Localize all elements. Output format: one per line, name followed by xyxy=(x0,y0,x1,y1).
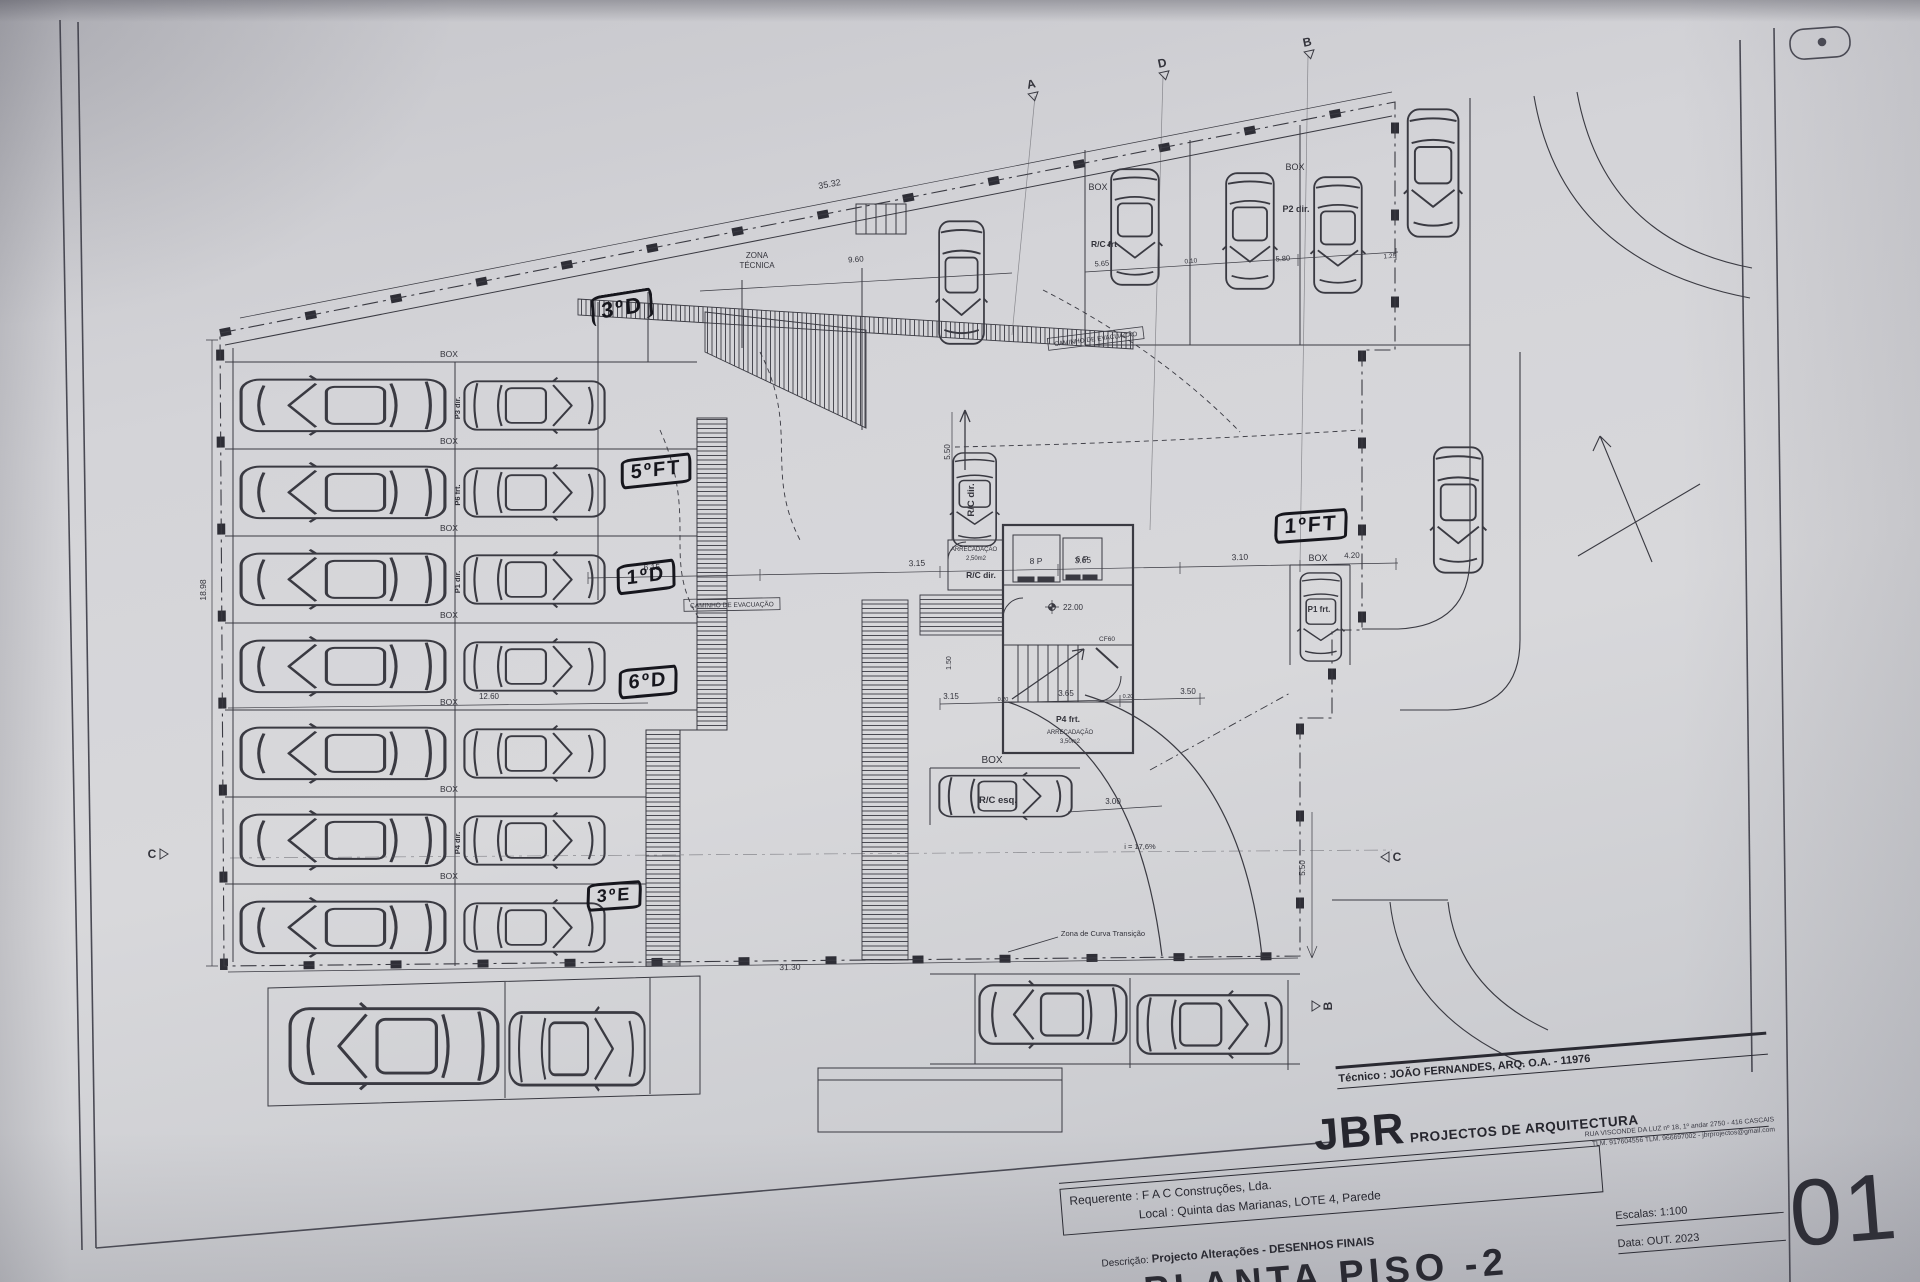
car-icon xyxy=(1297,573,1344,661)
plan-label-box-14: BOX xyxy=(440,349,458,359)
date-row: Data: OUT. 2023 xyxy=(1617,1225,1786,1254)
plan-label-5-50-39: 5.50 xyxy=(943,444,952,460)
car-icon xyxy=(241,463,445,522)
section-marker-d-1: D xyxy=(1156,55,1171,81)
section-marker-a-0: A xyxy=(1025,76,1040,102)
car-icon xyxy=(464,639,604,695)
plan-label-box-17: BOX xyxy=(440,610,458,620)
car-icon xyxy=(241,376,445,435)
plan-label-2-50m2-50: 2,50m2 xyxy=(966,556,987,562)
car-icon xyxy=(241,898,445,957)
plan-label-box-53: BOX xyxy=(1308,553,1327,563)
plan-label-8-p-42: 8 P xyxy=(1030,556,1043,566)
plan-label-6-p-43: 6 P xyxy=(1076,554,1089,564)
description-label: Descrição: xyxy=(1101,1255,1149,1270)
section-markers: ADBCCB xyxy=(148,34,1402,1011)
plan-label-5-50-40: 5.50 xyxy=(1298,860,1307,876)
right-middle-parking xyxy=(930,453,1350,825)
plan-label-cf60-45: CF60 xyxy=(1099,636,1115,643)
handwritten-1-ft: 1ºFT xyxy=(1274,508,1348,544)
plan-label-box-19: BOX xyxy=(440,784,458,794)
section-marker-triangle xyxy=(1312,1001,1320,1011)
plan-label-box-20: BOX xyxy=(440,871,458,881)
plan-label-i-17-6-57: i = 17,6% xyxy=(1124,842,1156,851)
plan-label-31-30-26: 31.30 xyxy=(779,962,801,972)
plan-label-0-20-36: 0.20 xyxy=(1123,694,1134,700)
plan-label-box-16: BOX xyxy=(440,523,458,533)
left-parking-block xyxy=(225,362,727,966)
car-icon xyxy=(1222,173,1277,289)
plan-label-box-8: BOX xyxy=(1285,162,1304,172)
plan-label-1-50-41: 1.50 xyxy=(946,656,953,670)
plan-label-3-50m2-48: 3,50m2 xyxy=(1060,739,1081,745)
section-marker-letter: A xyxy=(1025,76,1037,92)
car-icon xyxy=(980,981,1127,1049)
firm-logo: JBR xyxy=(1312,1104,1407,1160)
car-icon xyxy=(464,726,604,782)
car-icon xyxy=(1430,447,1486,572)
plan-label-arrecada-o-49: ARRECADAÇÃO xyxy=(951,546,998,553)
handwritten-3-e: 3ºE xyxy=(586,880,641,912)
car-icon xyxy=(1310,177,1365,293)
plan-label-p4-dir-24: P4 dir. xyxy=(453,832,462,855)
plan-label-4-20-32: 4.20 xyxy=(1344,551,1360,561)
car-icon xyxy=(241,724,445,783)
car-icon xyxy=(241,637,445,696)
plan-label-arrecada-o-47: ARRECADAÇÃO xyxy=(1047,729,1094,736)
plan-label-3-00-38: 3.00 xyxy=(1105,797,1121,806)
car-icon xyxy=(509,1007,644,1091)
scale-row: Escalas: 1:100 xyxy=(1615,1197,1784,1226)
section-marker-triangle xyxy=(160,849,168,859)
car-icon xyxy=(1137,991,1281,1059)
section-marker-letter: B xyxy=(1321,1001,1335,1010)
car-icon xyxy=(290,1003,498,1089)
section-marker-triangle xyxy=(1304,50,1315,60)
car-icon xyxy=(464,813,604,869)
car-icon xyxy=(464,465,604,521)
plan-label-22-00-44: 22.00 xyxy=(1063,603,1084,612)
plan-label-1-25-13: 1.25 xyxy=(1383,253,1396,261)
plan-label-p1-dir-23: P1 dir. xyxy=(453,571,462,594)
section-marker-c-3: C xyxy=(148,847,168,861)
plan-label-p1-frt-54: P1 frt. xyxy=(1308,605,1331,614)
plan-label-r-c-dir-51: R/C dir. xyxy=(966,570,996,580)
plan-label-box-18: BOX xyxy=(440,697,458,707)
car-icon xyxy=(241,550,445,609)
section-marker-letter: B xyxy=(1301,34,1313,50)
plan-label-p4-frt-46: P4 frt. xyxy=(1056,714,1080,724)
plan-label-zona-de-curva-transi-o-58: Zona de Curva Transição xyxy=(1061,929,1145,938)
section-marker-letter: C xyxy=(148,847,157,861)
section-marker-letter: C xyxy=(1393,850,1402,864)
plan-label-3-15-33: 3.15 xyxy=(943,692,959,701)
plan-label-box-55: BOX xyxy=(981,755,1002,766)
plan-labels: ZONATÉCNICA35.329.60CAMINHO DE EVACUAÇÃO… xyxy=(198,162,1397,972)
section-marker-triangle xyxy=(1028,92,1039,102)
plan-label-35-32-2: 35.32 xyxy=(818,177,842,191)
plan-label-t-cnica-1: TÉCNICA xyxy=(739,261,775,270)
plan-label-r-c-esq-56: R/C esq. xyxy=(979,795,1017,806)
section-marker-letter: D xyxy=(1156,55,1168,71)
plan-label-p2-dir-9: P2 dir. xyxy=(1282,204,1309,214)
street-right xyxy=(1332,92,1752,1064)
plan-label-3-15-29: 3.15 xyxy=(908,558,925,569)
plan-label-p3-dir-21: P3 dir. xyxy=(453,397,462,420)
section-marker-triangle xyxy=(1159,71,1170,81)
plan-label-3-50-37: 3.50 xyxy=(1180,687,1196,696)
plan-label-p6-frt-22: P6 frt. xyxy=(453,484,462,505)
section-lines xyxy=(230,56,1392,858)
plan-label-5-65-10: 5.65 xyxy=(1094,259,1109,269)
plan-label-18-98-27: 18.98 xyxy=(198,579,208,601)
plan-label-0-10-11: 0.10 xyxy=(1184,258,1197,266)
ramps xyxy=(578,290,1360,960)
section-marker-c-4: C xyxy=(1381,850,1402,864)
sheet-number: 01 xyxy=(1785,1152,1902,1268)
plan-label-5-80-12: 5.80 xyxy=(1275,254,1290,264)
parked-cars-left xyxy=(241,376,604,957)
section-marker-b-5: B xyxy=(1312,1001,1335,1011)
plan-label-box-15: BOX xyxy=(440,436,458,446)
car-icon xyxy=(464,900,604,956)
plan-label-3-10-31: 3.10 xyxy=(1231,552,1248,563)
section-marker-b-2: B xyxy=(1301,34,1316,60)
plan-label-box-6: BOX xyxy=(1088,182,1107,192)
plan-label-3-65-35: 3.65 xyxy=(1058,689,1074,698)
car-icon xyxy=(464,378,604,434)
plan-label-12-60-25: 12.60 xyxy=(479,692,500,701)
section-marker-triangle xyxy=(1381,852,1389,862)
plan-label-zona-0: ZONA xyxy=(746,251,769,260)
top-right-parking xyxy=(936,125,1395,345)
plan-label-0-20-34: 0.20 xyxy=(998,697,1009,703)
handwritten-6-d: 6ºD xyxy=(618,664,677,699)
plan-label-r-c-dir-52: R/C dir. xyxy=(966,483,977,516)
plan-label-r-c-frt-7: R/C frt xyxy=(1091,239,1117,249)
photographed-floor-plan-sheet: ADBCCB ZONATÉCNICA35.329.60CAMINHO DE EV… xyxy=(0,0,1920,1282)
car-icon xyxy=(1404,109,1463,236)
car-icon xyxy=(464,552,604,608)
plan-label-9-60-3: 9.60 xyxy=(848,254,865,264)
car-icon xyxy=(241,811,445,870)
